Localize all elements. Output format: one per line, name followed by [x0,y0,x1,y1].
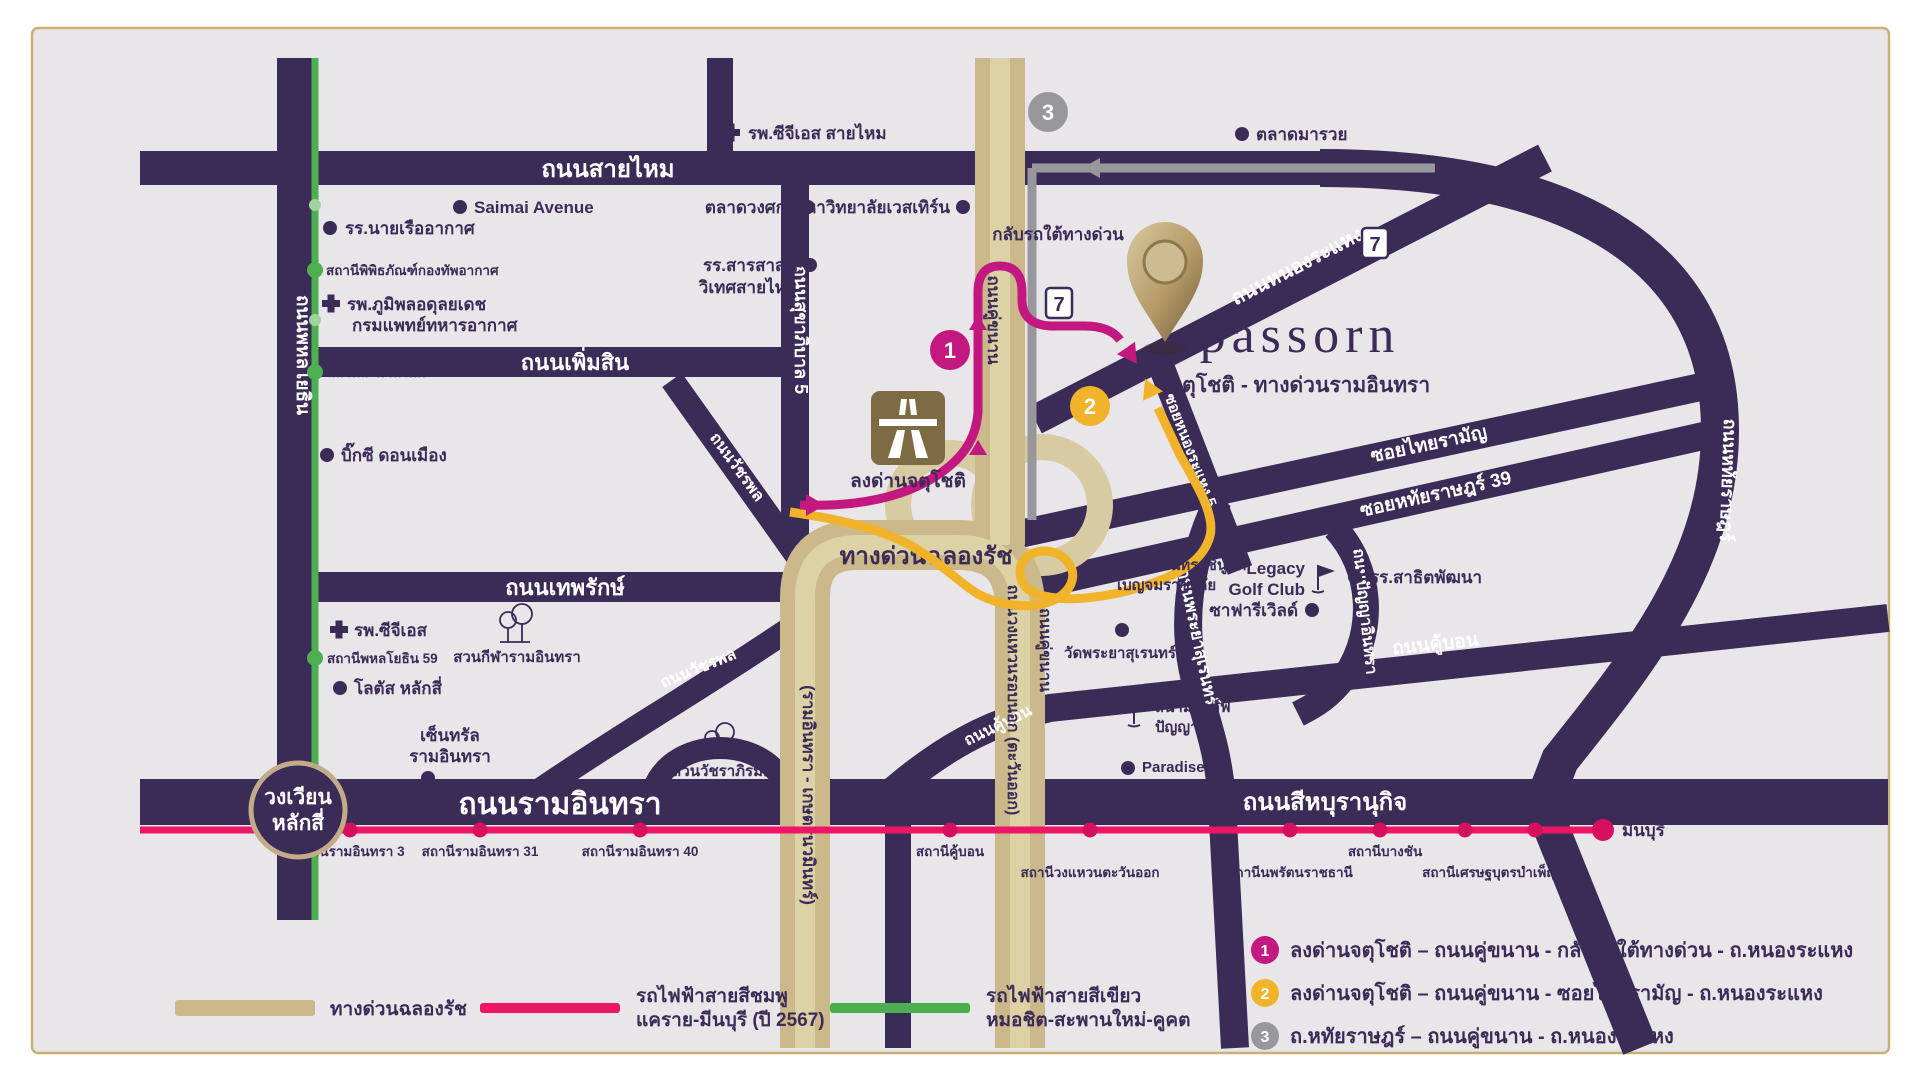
badge-3-num: 3 [1042,100,1054,125]
legend-swatch-green [830,1003,970,1013]
station-label: สถานีบางชัน [1348,844,1423,859]
poi-bhumibol-2: กรมแพทย์ทหารอากาศ [352,315,519,335]
label-saimai: ถนนสายไหม [541,154,674,183]
note-badge-1-num: 1 [1261,943,1270,960]
station-dot-terminus [1592,819,1614,841]
poi-paradise-2: Fashionisland [1142,779,1243,796]
poi-dot [453,200,467,214]
poi-sarasas-2: วิเทศสายไหม [698,277,797,297]
green-station-dot [307,262,323,278]
poi-dot [1115,623,1129,637]
cross-v [328,295,335,313]
route-note-2: ลงด่านจตุโชติ – ถนนคู่ขนาน - ซอยไทยรามัญ… [1290,981,1823,1007]
green-station-dot [307,364,323,380]
green-station-dot-minor [309,314,321,326]
poi-bhumibol-1: รพ.ภูมิพลอดุลยเดช [347,295,487,316]
badge-1-num: 1 [944,338,956,363]
station-label-green: สถานีสะพานใหม่ [327,364,426,380]
poi-dot [323,221,337,235]
poi-legacy-2: Golf Club [1229,580,1305,599]
road-phrayasuren-south [1222,802,1235,1048]
poi-central-1: เซ็นทรัล [420,723,480,745]
uturn-label: กลับรถใต้ทางด่วน [992,224,1124,244]
station-label-green: สถานีพิพิธภัณฑ์กองทัพอากาศ [326,262,499,278]
map-page: ถนนสายไหม ถนนพหลโยธิน ถนนเพิ่มสิน ถนนสุข… [0,0,1921,1081]
seven-eleven-icon: 7 [1046,288,1072,318]
label-sihaburanukit: ถนนสีหบุรานุกิจ [1243,789,1407,818]
exit-label: ลงด่านจตุโชติ [850,469,966,493]
lak-si-roundabout: วงเวียน หลักสี่ [251,763,345,857]
cross-v [336,621,343,639]
station-dot [633,823,648,838]
legend-green-1: รถไฟฟ้าสายสีเขียว [986,984,1141,1007]
legend-swatch-expressway [175,1000,315,1016]
poi-dot [421,771,435,785]
note-badge-2-num: 2 [1261,986,1270,1003]
poi-watchara-park: สวนวัชราภิรมย์ [672,762,772,780]
poi-cgs: รพ.ซีจีเอส [354,620,428,640]
station-dot [943,823,958,838]
poi-paradise-1: Paradise [1142,759,1205,776]
station-label: สถานีรามอินทรา 31 [422,844,539,859]
legend-pink-1: รถไฟฟ้าสายสีชมพู [636,984,788,1008]
project-logo: passorn [1200,307,1401,364]
roundabout-circle [251,763,345,857]
label-parallel-north: ถนนคู่ขนาน [982,275,1003,365]
label-phoemsin: ถนนเพิ่มสิน [521,346,629,375]
note-badge-3-num: 3 [1261,1029,1270,1046]
route-map: ถนนสายไหม ถนนพหลโยธิน ถนนเพิ่มสิน ถนนสุข… [0,0,1921,1081]
label-parallel-south: ถนนคู่ขนาน [1034,608,1053,692]
poi-saimai-avenue: Saimai Avenue [474,198,594,217]
pin-shadow [1143,342,1187,354]
poi-dot [1121,761,1135,775]
project-subtitle: จตุโชติ - ทางด่วนรามอินทรา [1170,372,1430,399]
poi-dot [1096,567,1110,581]
poi-dot [956,200,970,214]
bridge-bar [879,419,937,426]
station-label: สถานีเศรษฐบุตรบำเพ็ญ [1422,863,1558,882]
legend-pink-2: แคราย-มีนบุรี (ปี 2567) [636,1009,825,1032]
label-hathairat: ถนนหทัยราษฎร์ [1716,418,1741,542]
label-expressway-section: (รามอินทรา - เกษตรนวมินทร์) [799,685,819,905]
poi-dot [1235,127,1249,141]
seven-eleven-glyph: 7 [1369,234,1380,256]
station-label: สถานีวงแหวนตะวันออก [1020,865,1159,880]
label-outer-ring: ถนนวงแหวนรอบนอก (ตะวันออก) [1004,585,1022,816]
poi-nawamin-1: รร. นวมินทราชินูทิศ [1117,556,1247,575]
roundabout-label-2: หลักสี่ [272,807,324,835]
station-dot [1458,823,1473,838]
station-label-terminus: มีนบุรี [1622,820,1666,841]
badge-2-num: 2 [1084,394,1096,419]
station-dot [1528,823,1543,838]
poi-dot [320,448,334,462]
cross-v [728,124,735,142]
seven-eleven-glyph: 7 [1053,294,1064,316]
legend-swatch-pink [480,1003,620,1013]
poi-sarasas-1: รร.สารสาสน์ [703,255,797,275]
poi-safari: ซาฟารีเวิลด์ [1209,600,1298,620]
label-ramindra: ถนนรามอินทรา [458,788,661,821]
poi-dot [803,258,817,272]
green-station-dot [307,650,323,666]
seven-eleven-icon: 7 [1362,228,1388,258]
poi-panya-1: สนามกอล์ฟ [1155,698,1231,716]
poi-wat-phrayasuren: วัดพระยาสุเรนทร์ [1064,644,1177,663]
roundabout-label-1: วงเวียน [264,785,332,809]
label-phahonyothin: ถนนพหลโยธิน [292,295,315,415]
station-label: สถานีรามอินทรา 40 [582,844,699,859]
legend-green-2: หมอชิต-สะพานใหม่-คูคต [986,1008,1190,1032]
station-dot [1283,823,1298,838]
poi-western-univ: มหาวิทยาลัยเวสเทิร์น [794,197,950,217]
poi-dot [1305,603,1319,617]
poi-dot [333,681,347,695]
pin-inner-circle [1144,241,1186,283]
poi-bigc: บิ๊กซี ดอนเมือง [341,442,447,465]
poi-cgs-saimai: รพ.ซีจีเอส สายไหม [748,123,887,143]
exit-icon [871,391,945,465]
poi-ramindra-sport-park: สวนกีฬารามอินทรา [453,648,581,666]
poi-panya-2: ปัญญา [1155,719,1199,736]
poi-dot [1348,570,1362,584]
station-label: สถานีนพรัตนราชธานี [1227,865,1353,880]
station-label: สถานีคู้บอน [916,844,985,860]
station-dot [1373,823,1388,838]
route-note-3: ถ.หทัยราษฎร์ – ถนนคู่ขนาน - ถ.หนองระแหง [1290,1025,1674,1050]
station-dot [1083,823,1098,838]
poi-navy-school: รร.นายเรืออากาศ [345,218,476,238]
poi-wongsakon: ตลาดวงศกร [705,198,796,217]
poi-nawamin-2: เบญจมราชาลัย [1117,577,1216,594]
poi-legacy-1: Legacy [1246,559,1305,578]
station-dot [473,823,488,838]
green-station-dot-minor [309,199,321,211]
route-note-1: ลงด่านจตุโชติ – ถนนคู่ขนาน - กลับรถใต้ทา… [1290,938,1853,964]
legend-expressway: ทางด่วนฉลองรัช [330,999,467,1020]
poi-lotus: โลตัส หลักสี่ [353,676,443,698]
poi-maruay: ตลาดมารวย [1256,125,1347,144]
poi-satit: รร.สาธิตพัฒนา [1370,568,1482,587]
poi-central-2: รามอินทรา [409,747,491,766]
station-label-green: สถานีพหลโยธิน 59 [327,649,438,666]
label-theparak: ถนนเทพรักษ์ [505,575,625,600]
